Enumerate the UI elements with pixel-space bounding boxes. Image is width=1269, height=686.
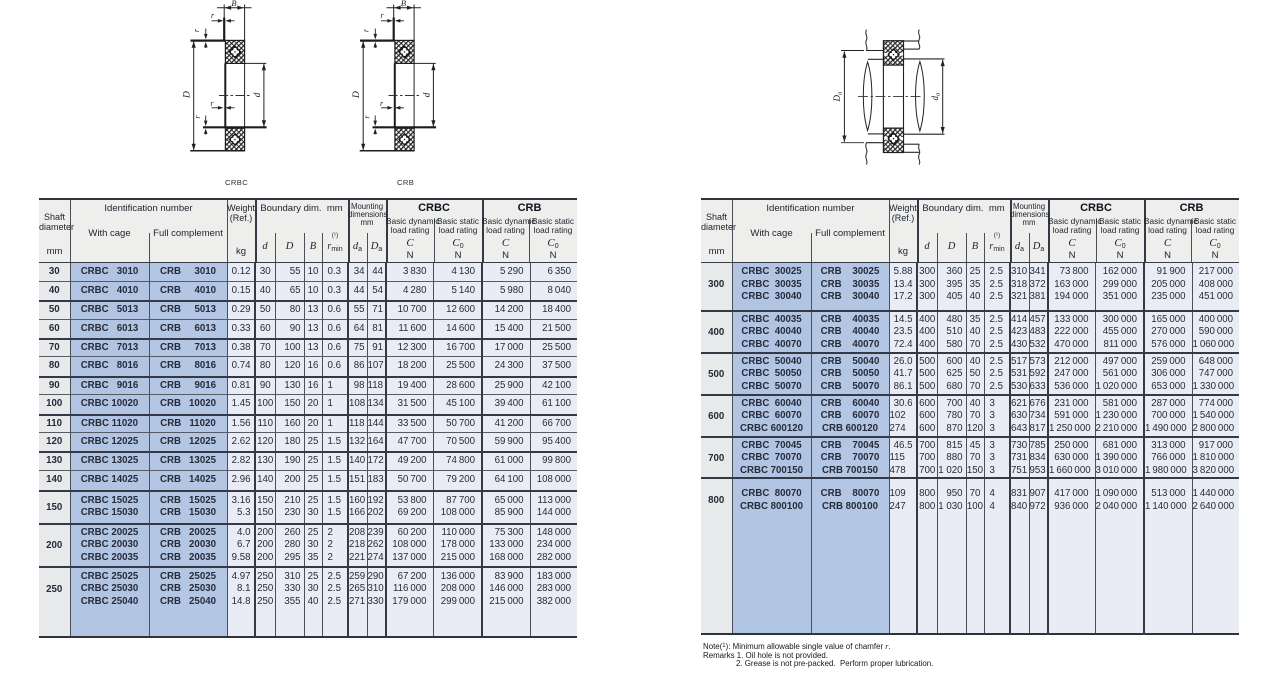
svg-text:D: D <box>352 91 362 99</box>
svg-text:Da: Da <box>832 92 844 103</box>
svg-text:B: B <box>401 0 406 8</box>
svg-text:r: r <box>380 11 384 20</box>
svg-text:da: da <box>930 93 942 101</box>
svg-text:r: r <box>380 99 384 108</box>
svg-text:r: r <box>362 28 371 32</box>
svg-text:d: d <box>422 92 432 97</box>
